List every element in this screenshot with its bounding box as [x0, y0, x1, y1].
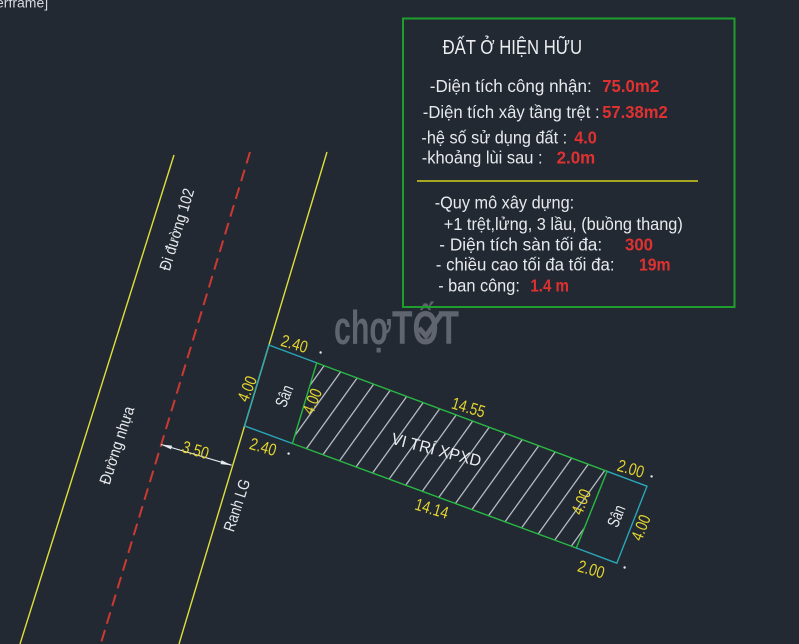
svg-text:-hệ số sử dụng đất :: -hệ số sử dụng đất :: [421, 127, 567, 147]
svg-text:- chiều cao tối đa tối đa:: - chiều cao tối đa tối đa:: [436, 254, 615, 274]
svg-text:-khoảng lùi sau :: -khoảng lùi sau :: [422, 147, 543, 167]
svg-text:2.40: 2.40: [279, 331, 310, 357]
svg-text:chợ: chợ: [334, 301, 391, 354]
svg-text:2.40: 2.40: [247, 434, 278, 460]
svg-text:- ban công:: - ban công:: [438, 275, 520, 295]
svg-text:19m: 19m: [639, 254, 671, 274]
svg-text:300: 300: [625, 234, 653, 254]
svg-text:-Diện tích công nhận:: -Diện tích công nhận:: [430, 76, 592, 96]
svg-text:2.00: 2.00: [576, 557, 607, 583]
svg-text:2.00: 2.00: [615, 456, 646, 482]
svg-text:TỐT: TỐT: [392, 301, 459, 354]
svg-text:erframe]: erframe]: [0, 0, 48, 11]
svg-text:2.0m: 2.0m: [557, 147, 596, 167]
svg-text:3.50: 3.50: [180, 437, 211, 463]
svg-text:1.4 m: 1.4 m: [530, 275, 569, 295]
svg-text:57.38m2: 57.38m2: [602, 102, 668, 122]
svg-text:4.0: 4.0: [574, 127, 597, 147]
svg-text:+1 trệt,lửng, 3 lầu, (buồng th: +1 trệt,lửng, 3 lầu, (buồng thang): [444, 214, 683, 234]
svg-text:- Diện tích sàn tối đa:: - Diện tích sàn tối đa:: [439, 234, 602, 254]
svg-text:75.0m2: 75.0m2: [602, 76, 659, 96]
svg-text:-Diện tích xây tầng trệt :: -Diện tích xây tầng trệt :: [423, 102, 600, 122]
svg-text:4.00: 4.00: [627, 512, 654, 543]
svg-text:Đường nhựa: Đường nhựa: [97, 404, 138, 486]
svg-text:-Quy mô xây dựng:: -Quy mô xây dựng:: [435, 192, 575, 212]
svg-text:Sân: Sân: [604, 502, 630, 530]
svg-text:Đi đường 102: Đi đường 102: [157, 186, 198, 272]
svg-text:ĐẤT Ở HIỆN HỮU: ĐẤT Ở HIỆN HỮU: [443, 35, 582, 59]
svg-text:4.00: 4.00: [234, 373, 261, 404]
svg-text:Sân: Sân: [272, 382, 298, 410]
